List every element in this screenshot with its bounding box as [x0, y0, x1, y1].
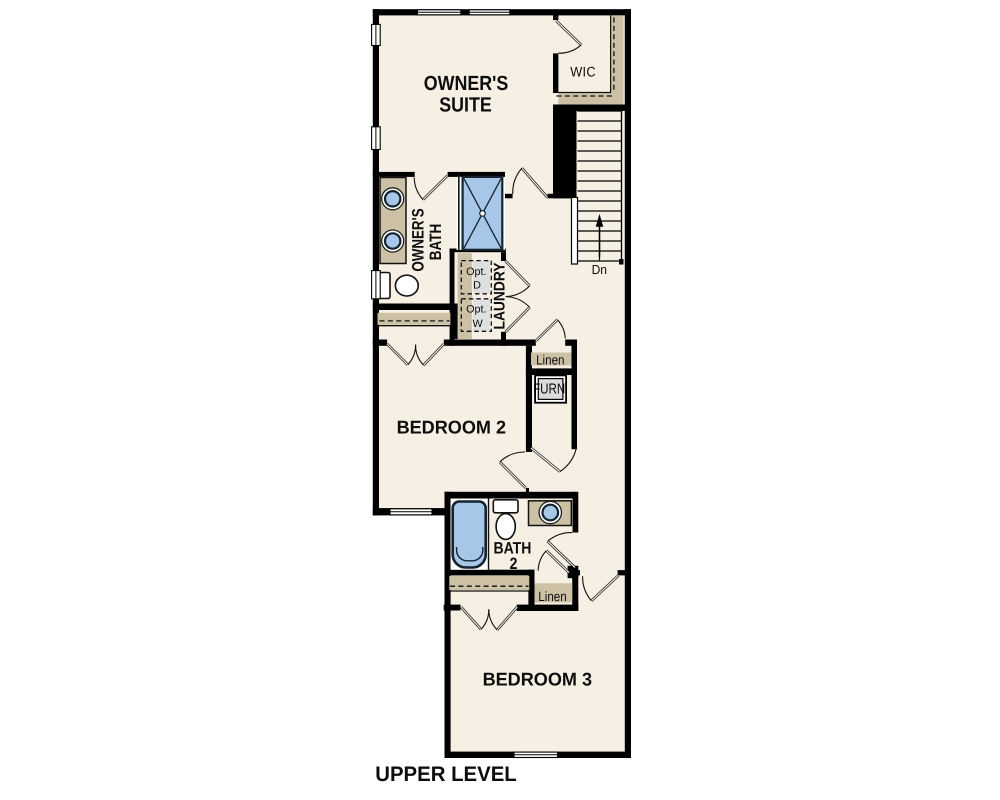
- svg-text:OWNER'S: OWNER'S: [410, 208, 428, 271]
- svg-text:Opt.: Opt.: [466, 266, 486, 278]
- svg-text:Opt.: Opt.: [466, 304, 486, 316]
- svg-text:Dn: Dn: [592, 262, 607, 277]
- svg-text:D: D: [473, 279, 481, 291]
- svg-text:BEDROOM 3: BEDROOM 3: [483, 669, 592, 690]
- svg-text:OWNER'S: OWNER'S: [424, 72, 508, 95]
- svg-text:FURN: FURN: [533, 382, 565, 398]
- svg-text:LAUNDRY: LAUNDRY: [491, 262, 508, 330]
- svg-text:SUITE: SUITE: [439, 94, 492, 117]
- svg-text:W: W: [472, 318, 483, 330]
- svg-text:Linen: Linen: [538, 589, 566, 604]
- svg-text:WIC: WIC: [570, 64, 596, 80]
- svg-text:BEDROOM 2: BEDROOM 2: [397, 417, 506, 438]
- svg-text:BATH: BATH: [427, 224, 445, 261]
- svg-text:Linen: Linen: [536, 352, 564, 367]
- svg-text:UPPER LEVEL: UPPER LEVEL: [375, 763, 517, 786]
- svg-text:2: 2: [510, 555, 518, 573]
